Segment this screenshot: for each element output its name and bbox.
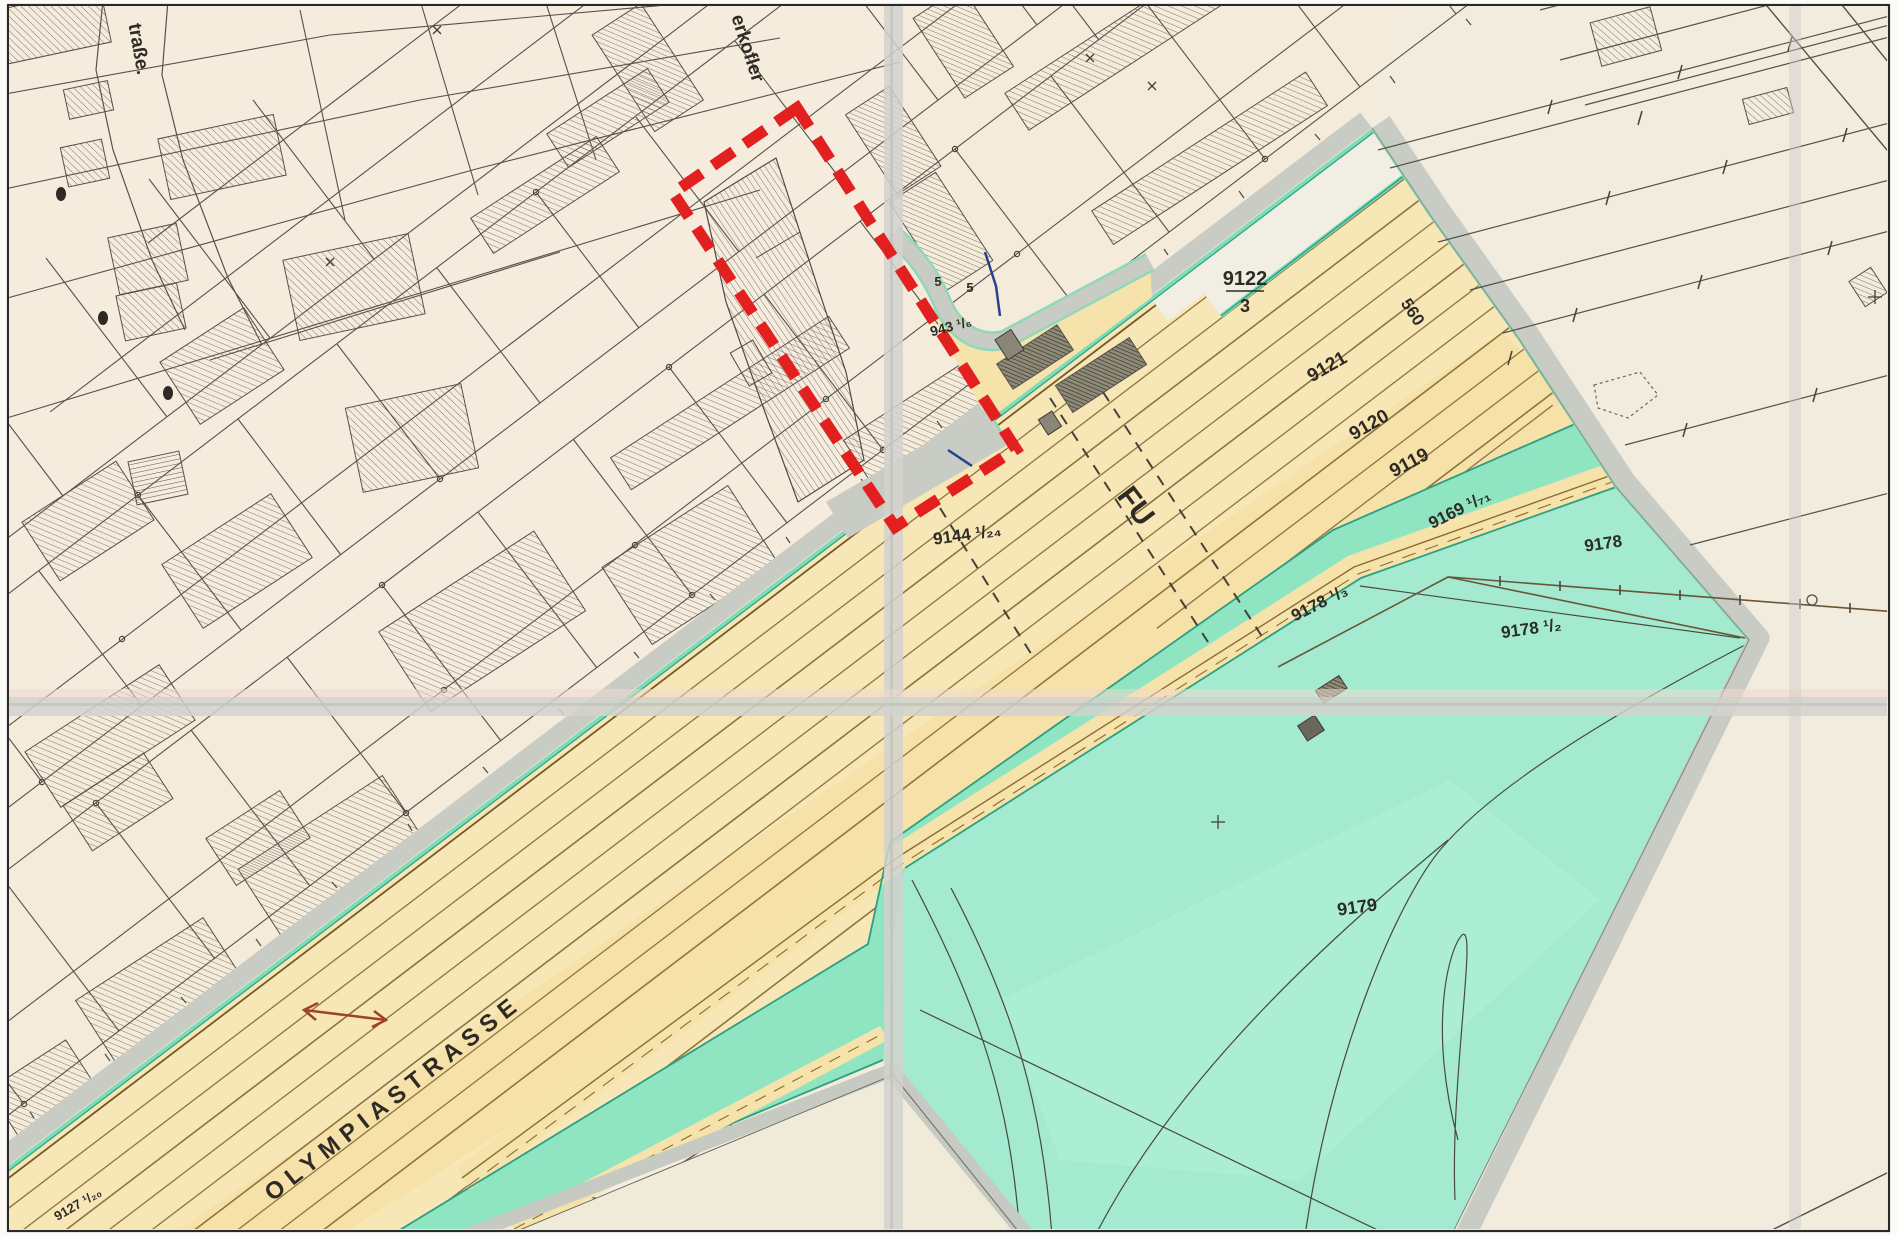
svg-text:5: 5 (966, 280, 973, 295)
svg-text:9122: 9122 (1223, 268, 1268, 290)
svg-text:3: 3 (1240, 296, 1250, 316)
svg-text:5: 5 (934, 274, 941, 289)
